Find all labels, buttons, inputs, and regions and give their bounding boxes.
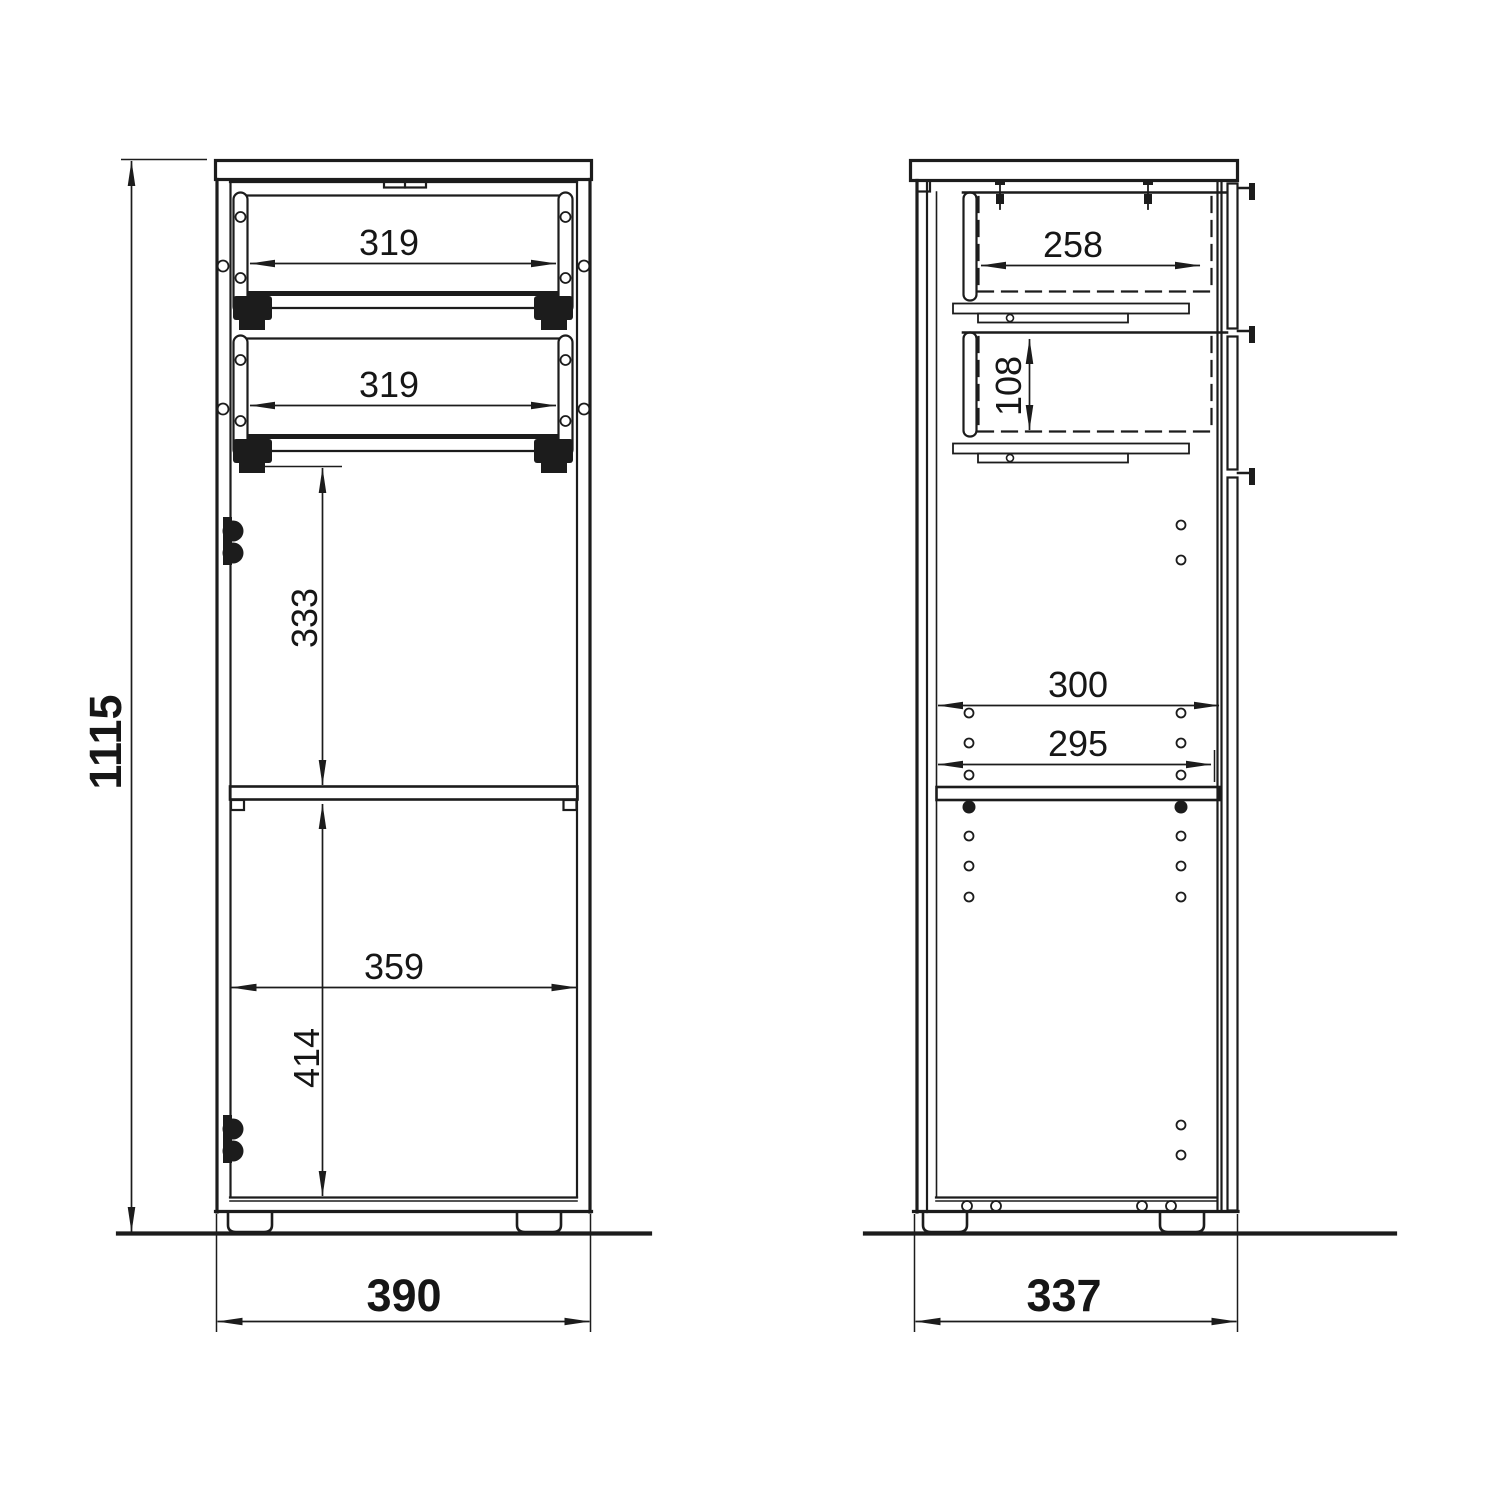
dim-label-interior-depth: 300: [1048, 664, 1108, 705]
dim-label-overall-depth: 337: [1026, 1270, 1101, 1321]
side-hole: [579, 404, 590, 415]
drawer-slide-block: [534, 296, 573, 320]
drawer-slide-tab: [541, 320, 567, 330]
shelf-clip: [564, 800, 577, 810]
dim-label-drawer-height: 108: [988, 356, 1029, 416]
front-view: 319 319 333 414 359 1115 390: [80, 160, 650, 1333]
shelf-front: [230, 787, 578, 811]
drawer-slide-tab: [541, 463, 567, 473]
handle-hook-1: [1238, 183, 1255, 200]
dim-label-shelf-depth: 295: [1048, 723, 1108, 764]
top-panel-side: [911, 161, 1238, 192]
dim-label-drawer1-width: 319: [359, 222, 419, 263]
dim-side-interior-depth: 300: [938, 664, 1219, 706]
shelf-clip: [231, 800, 244, 810]
dim-front-upper-height: 333: [258, 467, 342, 786]
technical-drawing-page: 319 319 333 414 359 1115 390: [0, 0, 1500, 1500]
foot-side-right: [1160, 1212, 1204, 1232]
side-hole: [218, 404, 229, 415]
dim-side-drawer-depth: 258: [981, 224, 1200, 266]
shelf-support-pin: [1175, 801, 1188, 814]
side-view: 258 108 300 295 337: [865, 161, 1395, 1333]
dim-front-lower-height: 414: [286, 804, 327, 1196]
drawer2-front-edge: [1228, 337, 1238, 470]
shelf-side: [937, 787, 1220, 800]
drawer-screw: [1143, 181, 1153, 209]
dim-front-drawer1-width: 319: [250, 222, 556, 264]
base-screw: [962, 1201, 972, 1211]
handle-hook-3: [1238, 468, 1255, 485]
foot-front-right: [517, 1212, 561, 1232]
dim-front-drawer2-width: 319: [250, 364, 556, 406]
dim-label-overall-width: 390: [366, 1270, 441, 1321]
drawer-runner: [953, 304, 1189, 323]
drawer-slide-block: [534, 439, 573, 463]
cabinet-dimension-drawing: 319 319 333 414 359 1115 390: [0, 0, 1500, 1500]
drawer-runner: [953, 444, 1189, 463]
foot-side-left: [923, 1212, 967, 1232]
base-screw: [1166, 1201, 1176, 1211]
handle-hook-2: [1238, 326, 1255, 343]
dim-label-upper-height: 333: [284, 588, 325, 648]
carcass-front: [216, 180, 592, 1213]
foot-front-left: [228, 1212, 272, 1232]
hinge-top: [223, 517, 244, 565]
dim-label-drawer-depth: 258: [1043, 224, 1103, 265]
drawer-screw: [995, 181, 1005, 209]
dim-label-overall-height: 1115: [80, 694, 131, 789]
hinge-bottom: [223, 1115, 244, 1163]
dim-side-drawer-height: 108: [988, 339, 1030, 430]
door-front-edge: [1228, 478, 1238, 1211]
base-screw: [991, 1201, 1001, 1211]
dim-label-lower-height: 414: [286, 1028, 327, 1088]
drawer1-front-edge: [1228, 184, 1238, 329]
top-panel-front: [216, 161, 592, 188]
front-panels-side: [1228, 183, 1256, 1211]
dim-side-shelf-depth: 295: [938, 723, 1215, 782]
side-hole: [218, 261, 229, 272]
drawer-slide-tab: [239, 463, 265, 473]
drawer-slide-tab: [239, 320, 265, 330]
dim-front-interior-width: 359: [232, 946, 577, 988]
dim-front-overall-height: 1115: [80, 160, 207, 1233]
shelf-support-pin: [963, 801, 976, 814]
base-screw: [1137, 1201, 1147, 1211]
drawer-slide-block: [233, 296, 272, 320]
side-hole: [579, 261, 590, 272]
shelf-pin-holes: [963, 521, 1188, 1160]
dim-label-interior-width: 359: [364, 946, 424, 987]
drawer-slide-block: [233, 439, 272, 463]
dim-label-drawer2-width: 319: [359, 364, 419, 405]
